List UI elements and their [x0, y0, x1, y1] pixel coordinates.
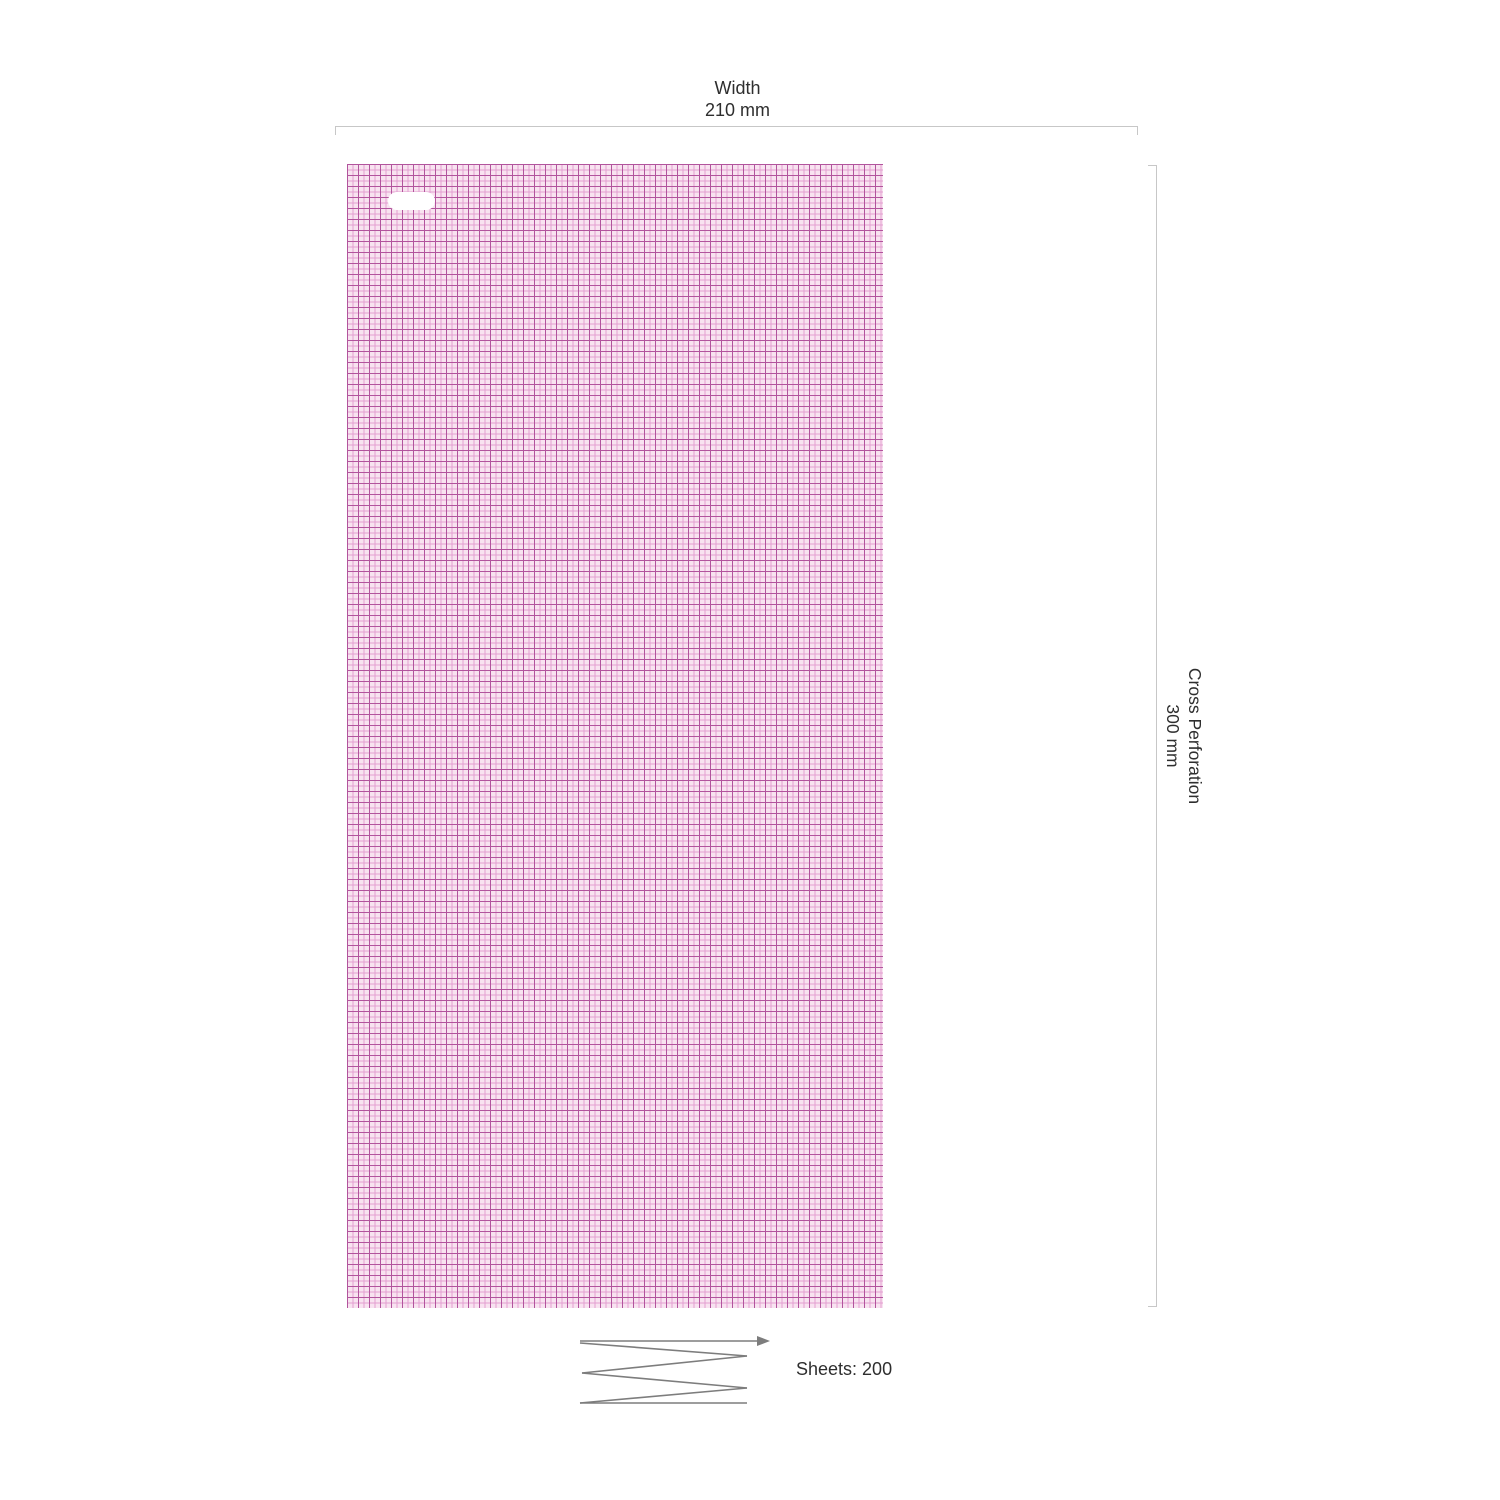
width-dimension-line — [335, 126, 1138, 135]
cross-perforation-title: Cross Perforation — [1184, 668, 1206, 804]
fold-diagonal-1 — [580, 1343, 747, 1356]
cross-perforation-value: 300 mm — [1162, 668, 1184, 804]
fold-arrowhead — [757, 1336, 770, 1346]
width-dimension-value: 210 mm — [336, 99, 1139, 121]
cross-perforation-label: Cross Perforation 300 mm — [1162, 668, 1206, 804]
sprocket-slot — [388, 192, 435, 210]
zigzag-fold-arrow-icon — [570, 1333, 780, 1413]
ecg-paper-spec-diagram: Width 210 mm Cross Perforation 300 mm Sh… — [0, 0, 1500, 1500]
sheets-count-label: Sheets: 200 — [796, 1358, 892, 1380]
cross-perforation-dimension-line — [1148, 165, 1157, 1307]
width-dimension-title: Width — [336, 77, 1139, 99]
fold-diagonal-3 — [582, 1373, 747, 1388]
width-dimension-label: Width 210 mm — [336, 77, 1139, 121]
fold-diagonal-4 — [580, 1388, 747, 1403]
fold-diagonal-2 — [582, 1356, 747, 1373]
ecg-grid-paper — [347, 164, 883, 1308]
